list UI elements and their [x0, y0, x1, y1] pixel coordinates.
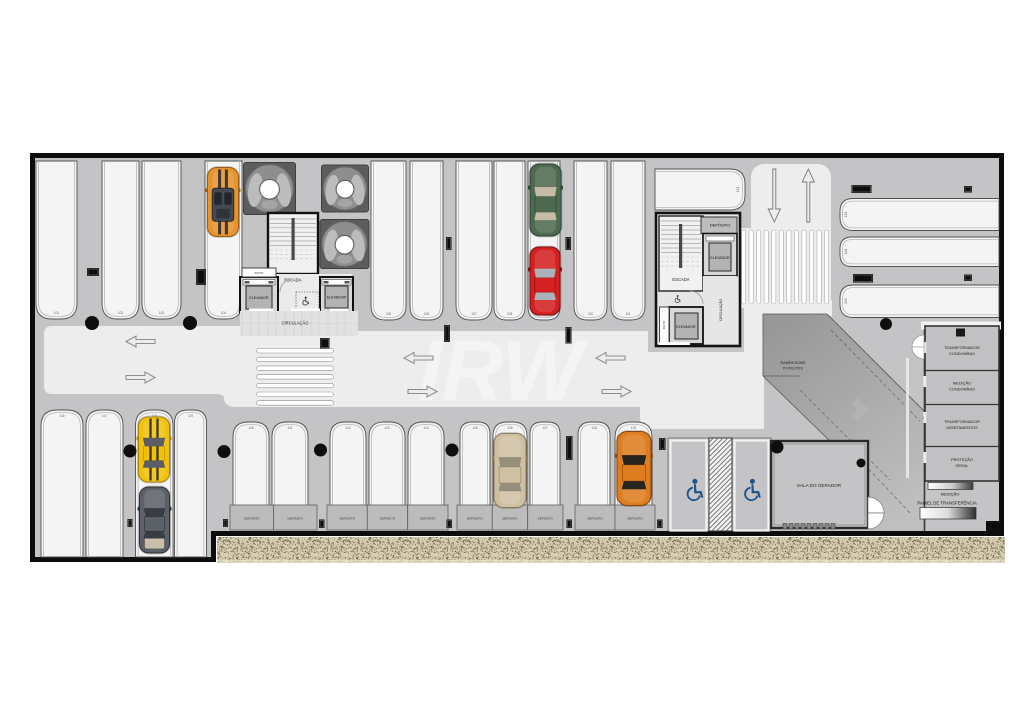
svg-text:114: 114: [844, 249, 848, 255]
svg-text:DEPÓSITO: DEPÓSITO: [538, 516, 554, 521]
svg-text:116: 116: [59, 414, 64, 418]
svg-text:PROTEÇÃO: PROTEÇÃO: [951, 457, 973, 462]
svg-text:CIRCULAÇÃO: CIRCULAÇÃO: [282, 321, 309, 326]
svg-text:ESCADA: ESCADA: [672, 277, 689, 282]
svg-text:DEPÓSITO: DEPÓSITO: [587, 516, 603, 521]
svg-text:TRANSFORMADOR: TRANSFORMADOR: [944, 345, 980, 350]
svg-text:110: 110: [588, 312, 593, 316]
svg-text:124: 124: [423, 426, 429, 430]
svg-text:113: 113: [844, 212, 848, 218]
svg-text:IRW: IRW: [418, 324, 588, 419]
svg-text:DUTO: DUTO: [255, 271, 264, 275]
svg-text:126: 126: [507, 426, 513, 430]
svg-text:DEPÓSITO: DEPÓSITO: [467, 516, 483, 521]
svg-text:108: 108: [507, 312, 513, 316]
svg-text:129: 129: [631, 426, 637, 430]
svg-text:ELEVADOR: ELEVADOR: [327, 296, 347, 300]
svg-text:122: 122: [345, 426, 351, 430]
svg-text:SALA DO GERADOR: SALA DO GERADOR: [797, 483, 842, 488]
svg-text:105: 105: [386, 312, 392, 316]
svg-text:DEPÓSITO: DEPÓSITO: [244, 516, 260, 521]
svg-text:TRANSFORMADOR: TRANSFORMADOR: [944, 419, 980, 424]
svg-text:ELEVADOR: ELEVADOR: [249, 296, 269, 300]
svg-text:123: 123: [384, 426, 390, 430]
svg-text:104: 104: [221, 311, 227, 315]
svg-text:121: 121: [287, 426, 293, 430]
svg-text:ELEVADOR: ELEVADOR: [676, 325, 696, 329]
svg-text:107: 107: [471, 312, 477, 316]
svg-text:DEPÓSITO: DEPÓSITO: [710, 223, 731, 228]
svg-text:125: 125: [472, 426, 478, 430]
svg-text:DEPÓSITO: DEPÓSITO: [420, 516, 436, 521]
svg-text:APARTAMENTOS: APARTAMENTOS: [946, 425, 978, 430]
svg-text:MEDIÇÃO: MEDIÇÃO: [953, 381, 971, 386]
svg-text:127: 127: [542, 426, 548, 430]
svg-text:120: 120: [248, 426, 254, 430]
svg-text:DEPÓSITO: DEPÓSITO: [339, 516, 355, 521]
svg-text:103: 103: [159, 311, 165, 315]
svg-text:CIRCULAÇÃO: CIRCULAÇÃO: [718, 299, 723, 322]
svg-text:117: 117: [102, 414, 107, 418]
svg-text:ELEVADOR: ELEVADOR: [710, 256, 730, 260]
svg-text:128: 128: [591, 426, 597, 430]
svg-text:101: 101: [54, 311, 60, 315]
svg-text:CONDOMÍNIO: CONDOMÍNIO: [949, 387, 975, 392]
svg-text:DEPÓSITO: DEPÓSITO: [287, 516, 303, 521]
svg-text:115: 115: [844, 298, 848, 304]
svg-text:DUTO: DUTO: [662, 320, 666, 329]
svg-text:119: 119: [188, 414, 193, 418]
svg-text:CONDOMÍNIO: CONDOMÍNIO: [949, 351, 975, 356]
svg-text:P/ PILOTIS: P/ PILOTIS: [783, 366, 803, 371]
svg-text:GERAL: GERAL: [955, 463, 969, 468]
svg-text:DEPÓSITO: DEPÓSITO: [502, 516, 518, 521]
svg-text:DEPÓSITO: DEPÓSITO: [380, 516, 396, 521]
svg-text:MEDIÇÃO: MEDIÇÃO: [941, 492, 960, 497]
svg-text:RAMPA SOBE: RAMPA SOBE: [780, 360, 806, 365]
svg-text:106: 106: [424, 312, 430, 316]
svg-text:102: 102: [118, 311, 124, 315]
svg-text:PAINEL DE TRANSFERÊNCIA: PAINEL DE TRANSFERÊNCIA: [917, 501, 977, 506]
svg-text:DEPÓSITO: DEPÓSITO: [627, 516, 643, 521]
svg-text:112: 112: [736, 187, 740, 193]
svg-text:111: 111: [626, 312, 631, 316]
